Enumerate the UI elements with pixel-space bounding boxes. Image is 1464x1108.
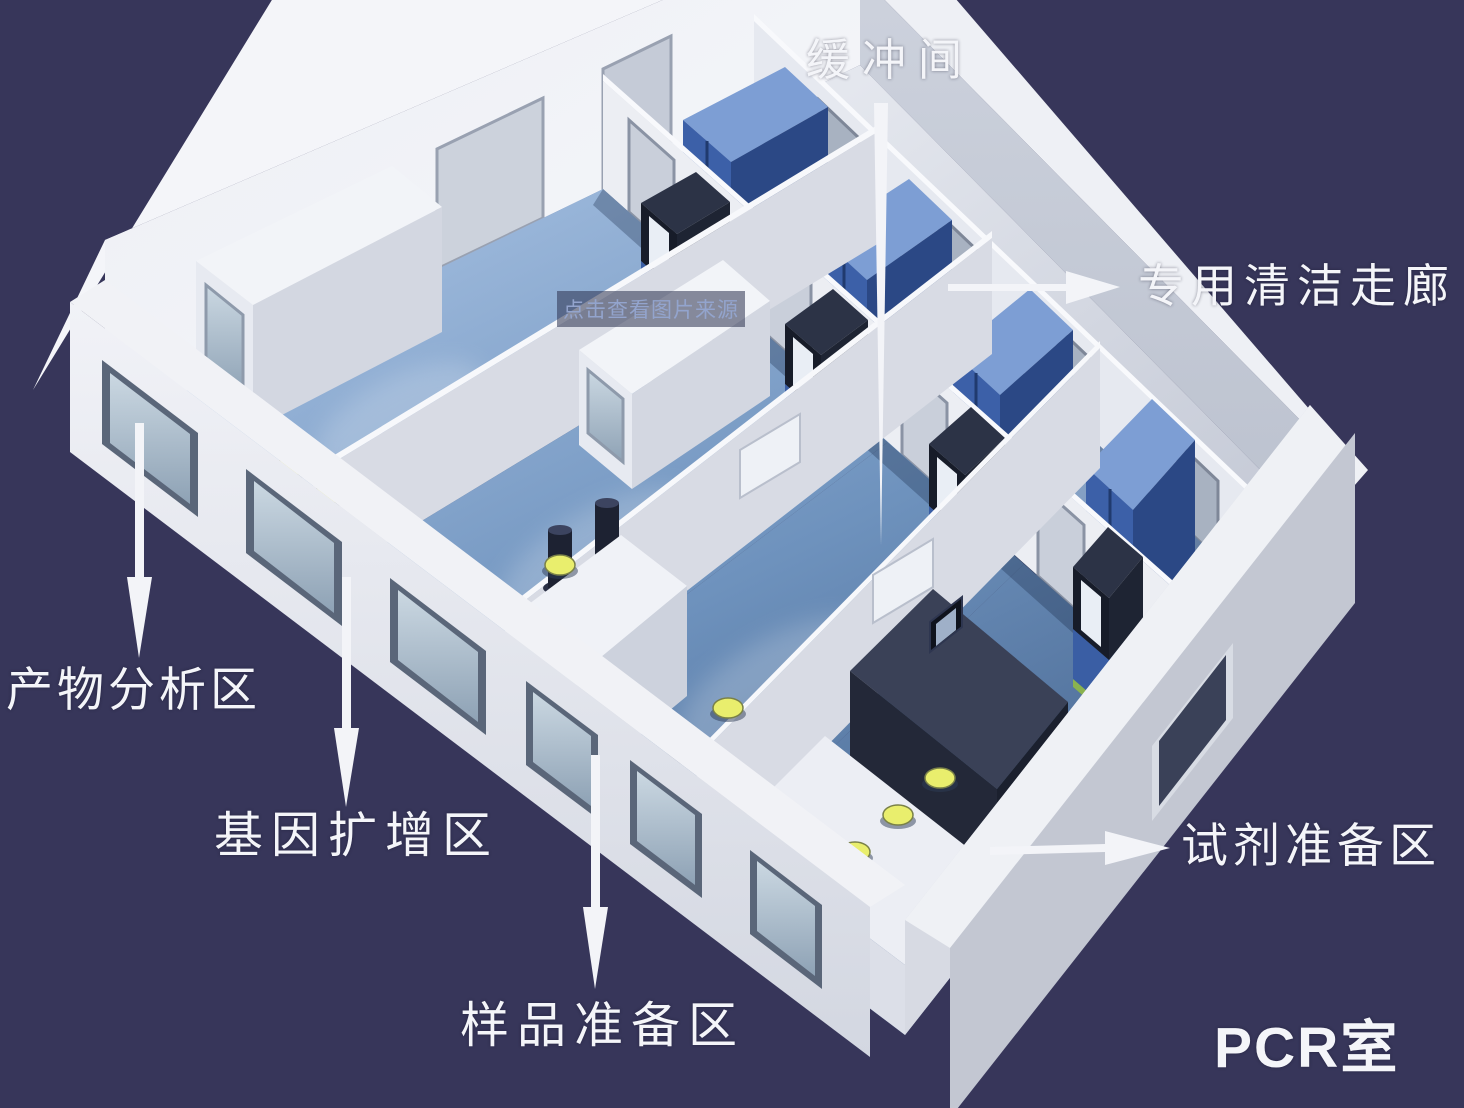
stool (542, 555, 578, 579)
stool (922, 768, 958, 792)
label-buffer-room: 缓冲间 (806, 36, 974, 87)
stool (710, 698, 746, 722)
image-source-watermark-link[interactable]: 点击查看图片来源 (557, 291, 745, 327)
label-clean-corridor: 专用清洁走廊 (1138, 260, 1456, 313)
label-gene-amplification-area: 基因扩增区 (214, 808, 499, 864)
lab-3d-rendering (0, 0, 1464, 1108)
stool (880, 805, 916, 829)
label-pcr-room: PCR室 (1214, 1016, 1399, 1082)
pcr-lab-diagram: 缓冲间 专用清洁走廊 产物分析区 基因扩增区 样品准备区 试剂准备区 PCR室 … (0, 0, 1464, 1108)
label-reagent-preparation-area: 试剂准备区 (1181, 820, 1441, 874)
label-sample-preparation-area: 样品准备区 (460, 998, 745, 1054)
label-product-analysis-area: 产物分析区 (6, 664, 261, 718)
